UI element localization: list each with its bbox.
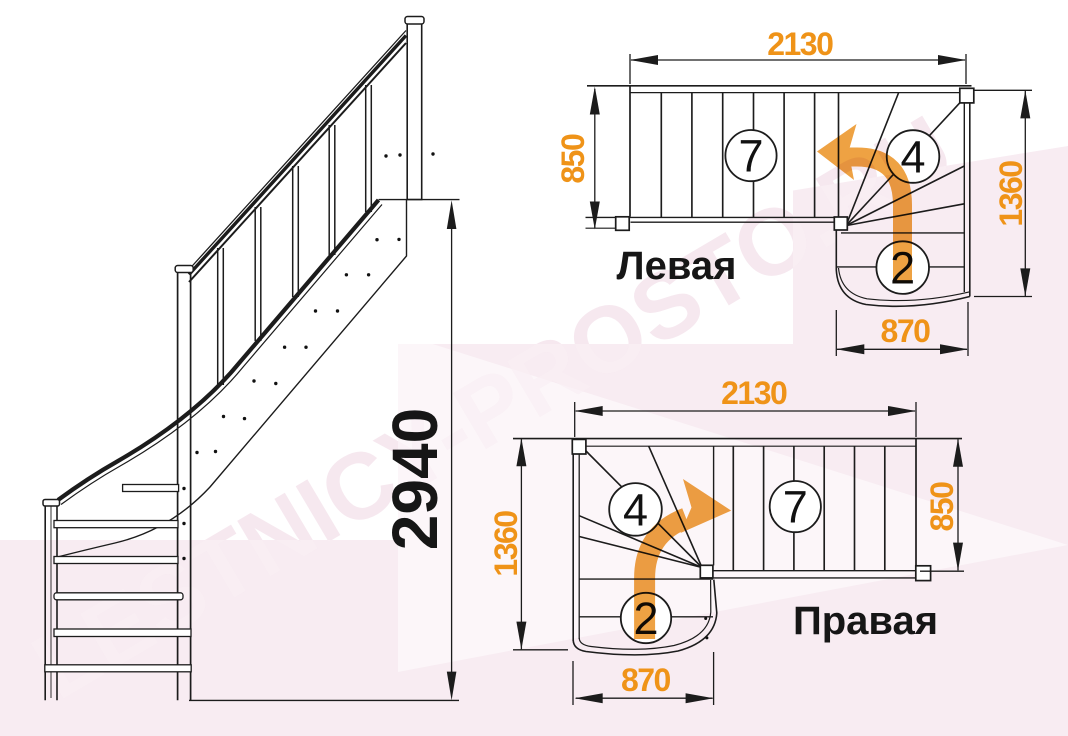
svg-text:7: 7 <box>783 482 808 533</box>
svg-text:2940: 2940 <box>379 408 451 550</box>
svg-text:850: 850 <box>555 134 591 184</box>
svg-text:2130: 2130 <box>721 375 787 411</box>
svg-text:Правая: Правая <box>793 599 938 643</box>
svg-text:Левая: Левая <box>617 244 737 288</box>
svg-text:870: 870 <box>621 662 671 698</box>
svg-text:4: 4 <box>623 484 648 535</box>
svg-text:870: 870 <box>881 313 931 349</box>
svg-text:850: 850 <box>924 482 960 532</box>
svg-text:1360: 1360 <box>993 161 1029 227</box>
svg-text:7: 7 <box>738 131 763 182</box>
svg-text:1360: 1360 <box>488 511 524 577</box>
svg-text:2130: 2130 <box>767 26 833 62</box>
